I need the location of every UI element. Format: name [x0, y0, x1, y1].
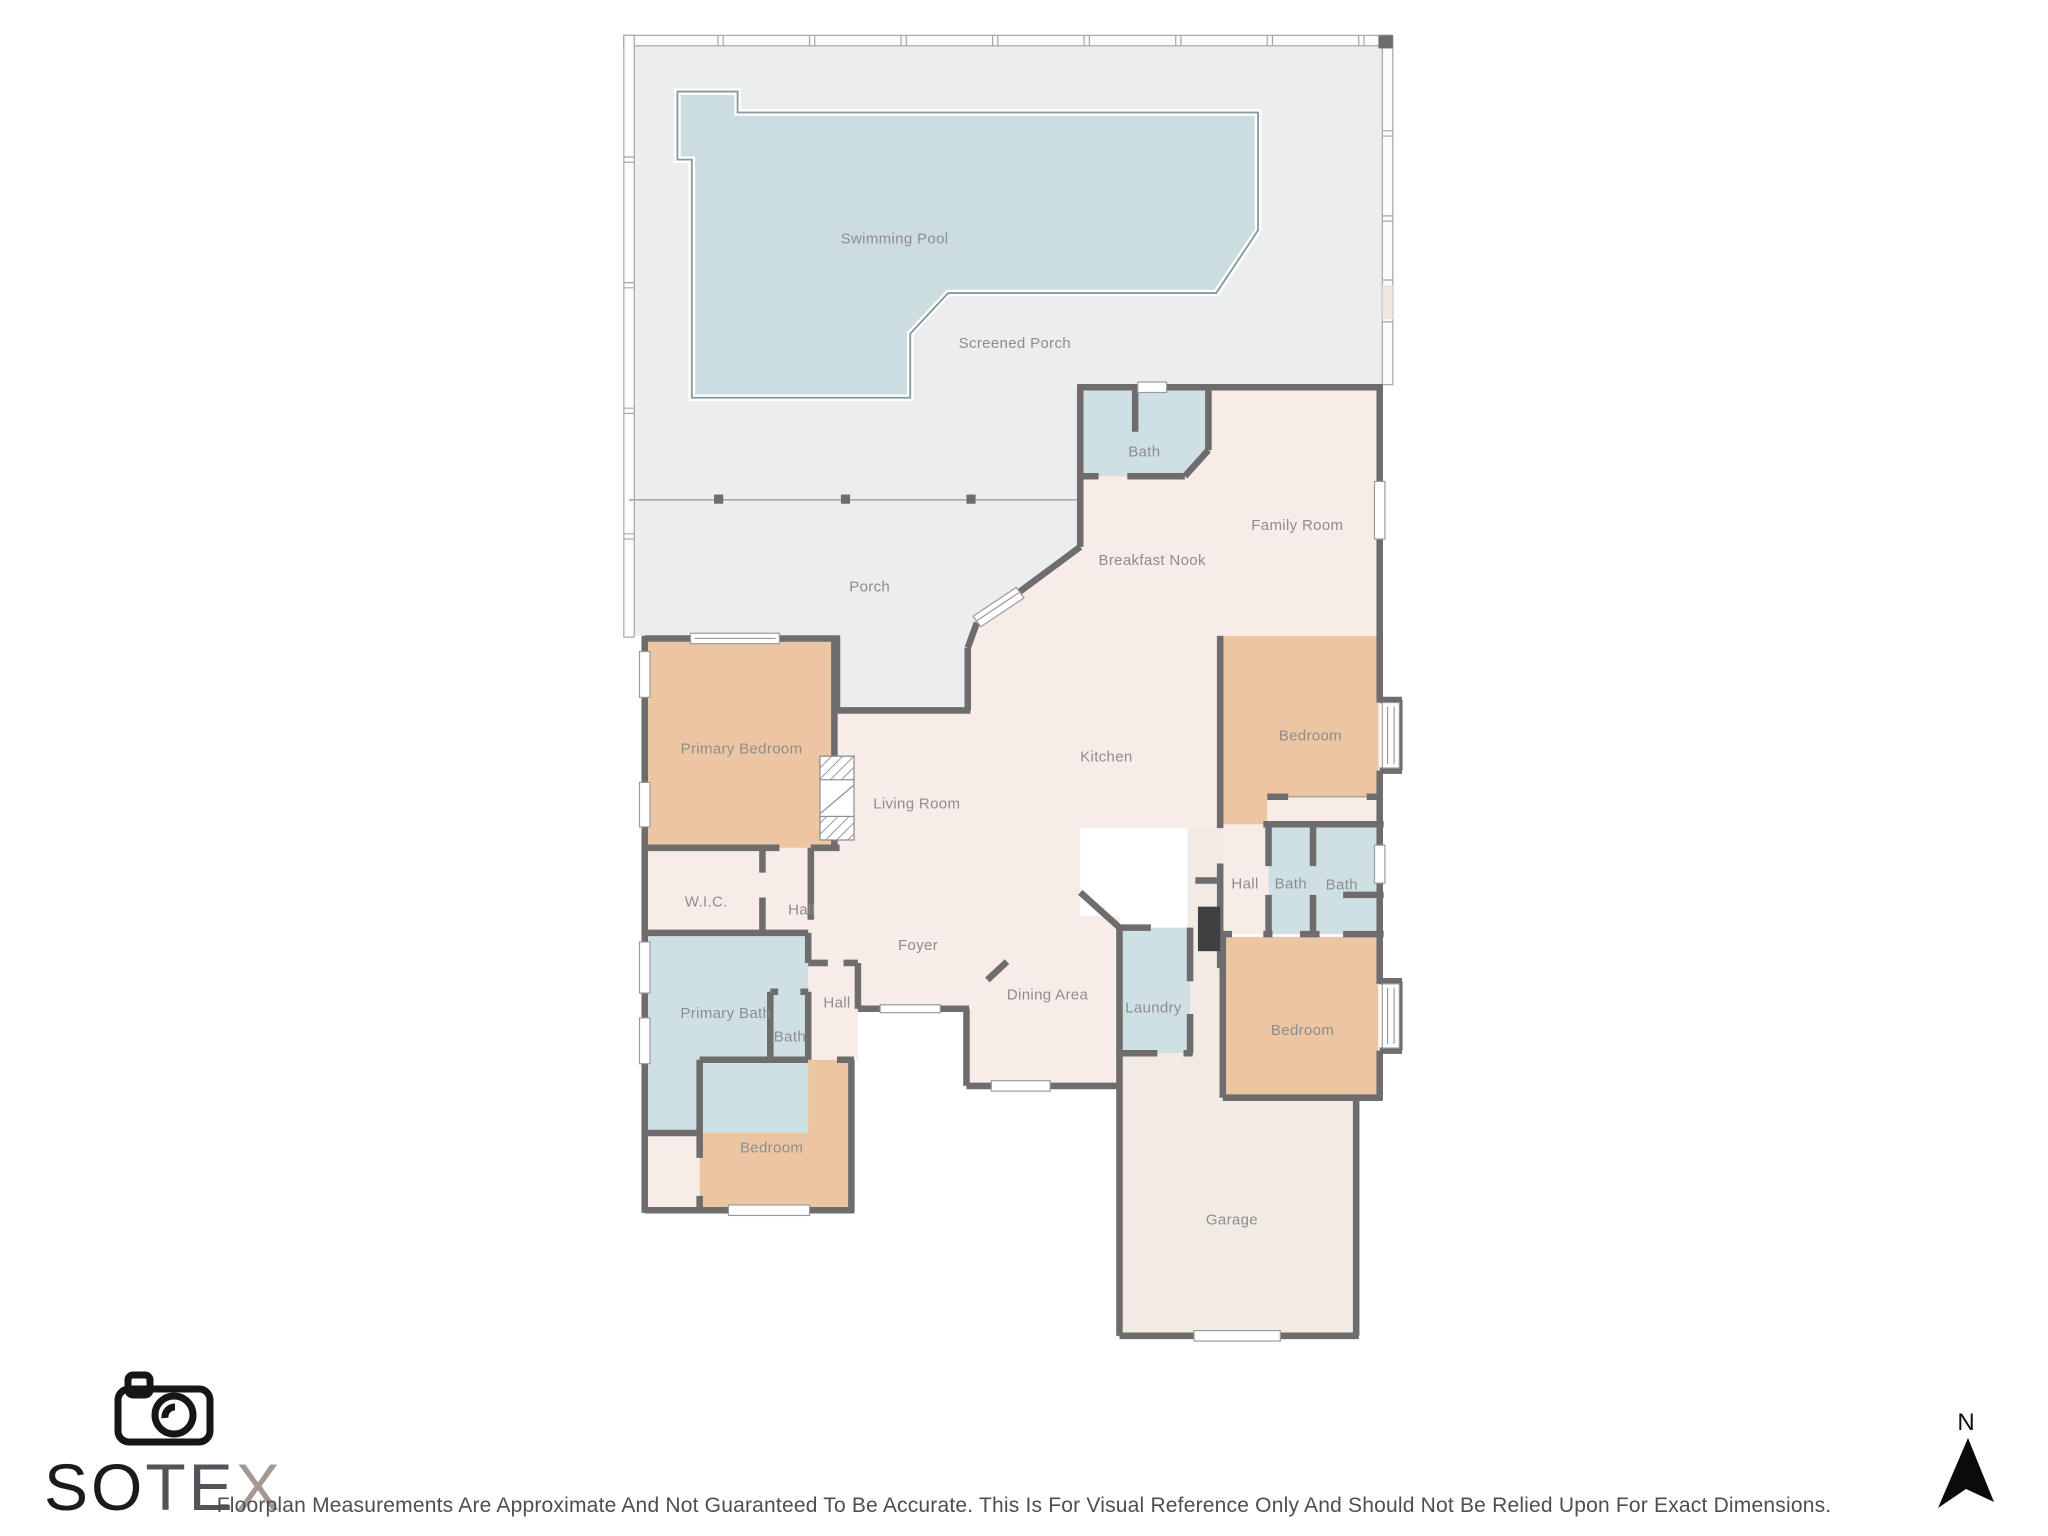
room-label-primary-bedroom: Primary Bedroom	[681, 741, 803, 758]
window-primary-bath-2	[640, 1018, 650, 1064]
room-label-wic: W.I.C.	[685, 894, 728, 911]
room-label-family-room: Family Room	[1251, 517, 1343, 534]
window-bath-top	[1138, 382, 1167, 392]
room-label-porch: Porch	[849, 578, 890, 595]
front-door	[880, 1005, 940, 1013]
room-label-bedroom-se: Bedroom	[1271, 1022, 1334, 1039]
room-label-hall-upper: Hall	[788, 902, 815, 919]
porch-post-segment	[1382, 285, 1392, 319]
north-compass: N	[1924, 1406, 2016, 1522]
room-label-screened-porch: Screened Porch	[959, 335, 1071, 352]
fireplace-hatch-bottom	[820, 816, 854, 840]
floorplan-page: Swimming Pool Screened Porch Porch Bath …	[0, 0, 2048, 1536]
room-label-bath-top: Bath	[1128, 444, 1160, 461]
room-label-hall-right: Hall	[1231, 875, 1258, 892]
room-label-garage: Garage	[1206, 1212, 1258, 1229]
porch-post-2	[841, 495, 850, 504]
room-label-breakfast-nook: Breakfast Nook	[1099, 552, 1206, 569]
disclaimer-text: Floorplan Measurements Are Approximate A…	[0, 1494, 2048, 1518]
bay-window-bedroom-se	[1382, 984, 1399, 1048]
room-label-kitchen: Kitchen	[1080, 748, 1132, 765]
garage-door	[1194, 1331, 1280, 1341]
window-dining	[991, 1081, 1050, 1091]
camera-lens-highlight	[165, 1407, 175, 1418]
room-label-hall-lower: Hall	[823, 994, 850, 1011]
screen-wall-right	[1382, 35, 1392, 384]
room-label-dining-area: Dining Area	[1007, 987, 1089, 1004]
floorplan-svg: Swimming Pool Screened Porch Porch Bath …	[0, 0, 2048, 1536]
camera-icon	[112, 1366, 216, 1448]
room-label-primary-bath: Primary Bath	[680, 1005, 771, 1022]
window-bedroom-sw	[728, 1205, 809, 1215]
window-family-room	[1374, 481, 1384, 539]
room-label-living-room: Living Room	[873, 796, 960, 813]
room-label-bedroom-ne: Bedroom	[1279, 728, 1342, 745]
north-arrow-icon	[1938, 1438, 1994, 1508]
camera-lens	[155, 1396, 193, 1434]
room-label-bedroom-sw: Bedroom	[740, 1140, 803, 1157]
room-label-bath-right1: Bath	[1275, 875, 1307, 892]
room-bath-top	[1080, 390, 1208, 476]
porch-corner-post	[1378, 35, 1392, 48]
room-label-laundry: Laundry	[1125, 1000, 1182, 1017]
room-label-swimming-pool: Swimming Pool	[841, 230, 949, 247]
room-bedroom-se	[1223, 937, 1379, 1098]
window-primary-bedroom-2	[640, 782, 650, 826]
utility-box	[1198, 907, 1220, 951]
room-laundry	[1119, 928, 1190, 1054]
screen-wall-left	[624, 35, 634, 637]
room-label-bath-right2: Bath	[1326, 877, 1358, 894]
porch-post-3	[966, 495, 975, 504]
room-bath-lower	[770, 992, 808, 1057]
room-strip-sw	[645, 1133, 700, 1210]
screen-wall-top	[624, 35, 1392, 45]
window-primary-bedroom-1	[640, 652, 650, 698]
window-primary-bath-1	[640, 942, 650, 993]
fireplace-hatch-top	[820, 756, 854, 780]
bay-window-bedroom-ne	[1382, 703, 1399, 768]
room-label-bath-lower: Bath	[774, 1028, 806, 1045]
north-label: N	[1957, 1409, 1974, 1436]
porch-post-1	[714, 495, 723, 504]
room-label-foyer: Foyer	[898, 937, 938, 954]
window-bath-right2	[1374, 845, 1384, 883]
